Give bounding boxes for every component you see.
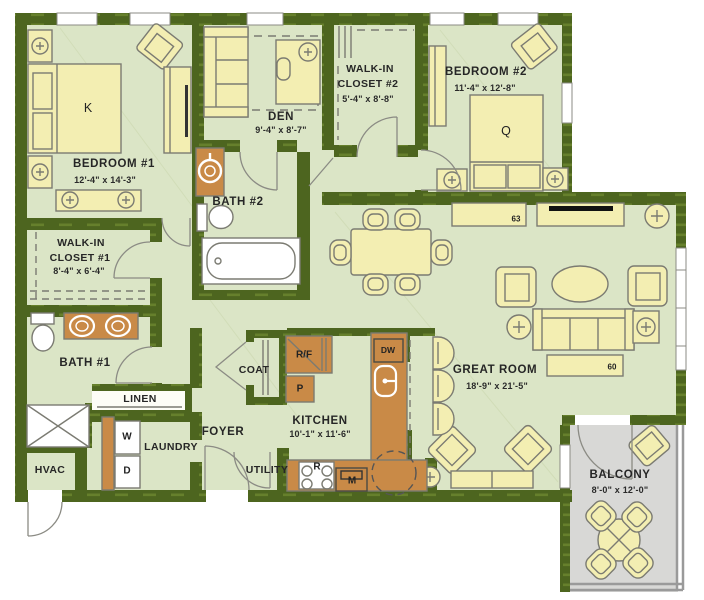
bathtub — [202, 238, 300, 284]
laundry-fixtures — [102, 417, 140, 490]
toilet-bowl — [32, 325, 54, 351]
linen-closet — [92, 391, 185, 410]
media-console — [547, 355, 623, 376]
pillow — [33, 73, 52, 109]
coffee-table — [552, 266, 608, 302]
toilet-tank — [31, 313, 54, 324]
pantry — [286, 376, 314, 402]
pillow — [474, 165, 506, 188]
sofa — [204, 27, 248, 117]
dresser — [429, 46, 446, 126]
toilet-bowl — [209, 206, 233, 229]
sideboard — [452, 203, 526, 226]
dining-table — [351, 229, 431, 275]
pillow — [33, 113, 52, 149]
dishwasher — [374, 339, 403, 362]
tv — [549, 206, 613, 211]
washer — [115, 421, 140, 454]
dryer — [115, 456, 140, 488]
refrigerator — [286, 336, 332, 373]
laundry-counter — [102, 417, 114, 490]
sofa — [533, 309, 634, 350]
floor-plan: BEDROOM #1 12'-4" x 14'-3" WALK-IN CLOSE… — [0, 0, 704, 600]
hvac-exterior-door — [28, 502, 62, 536]
pillow — [508, 165, 540, 188]
floor-plan-graphic — [0, 0, 704, 600]
toilet-tank — [197, 204, 207, 231]
